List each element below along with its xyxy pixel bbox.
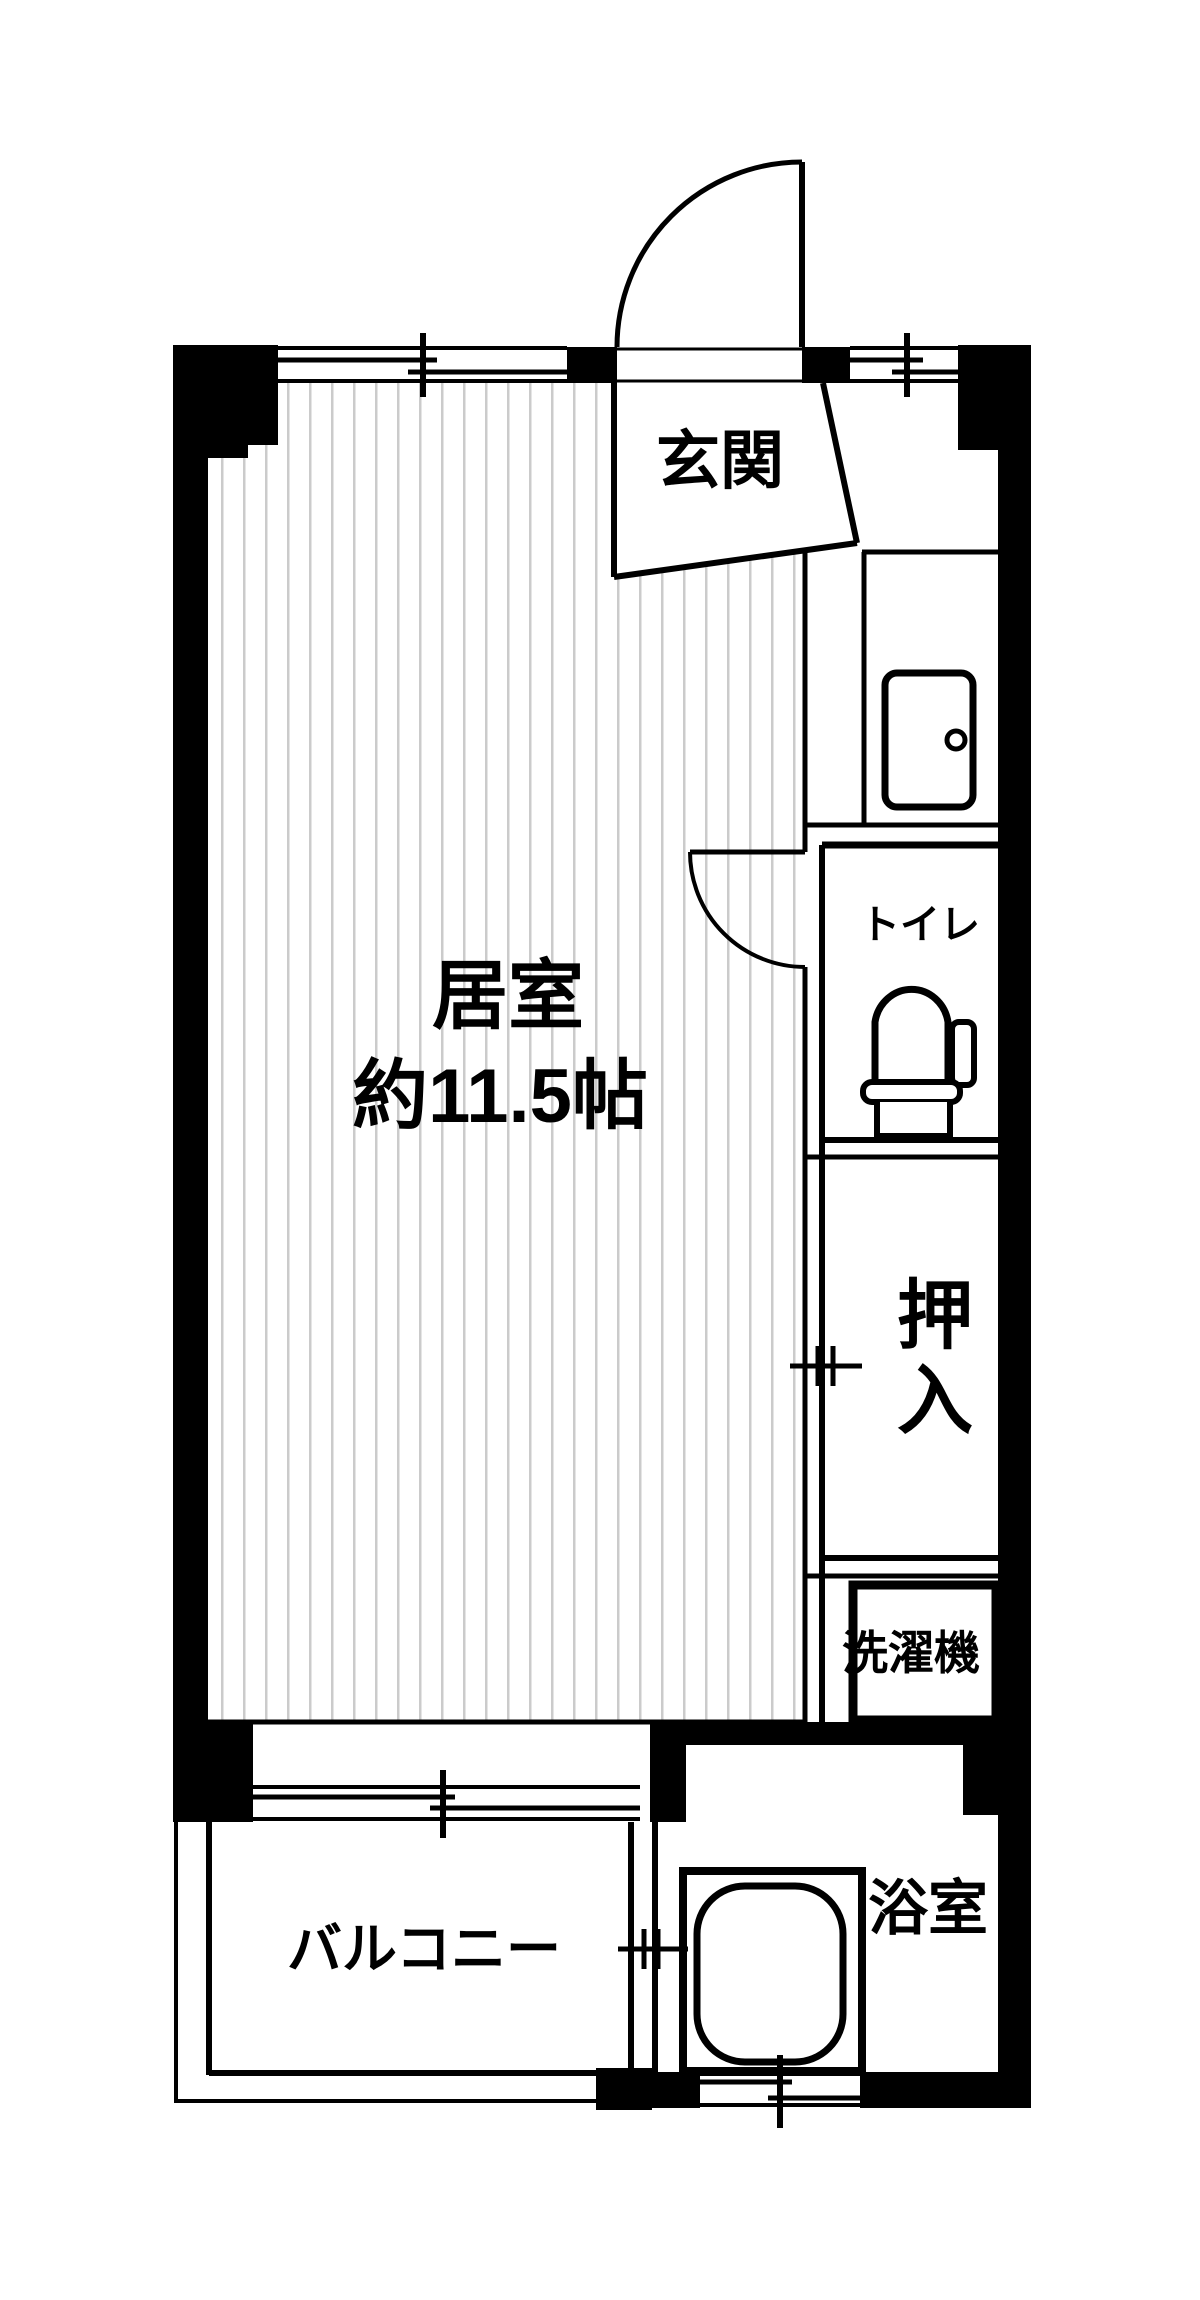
living-room-size-label: 約11.5帖 (352, 1054, 648, 1139)
living-room-floor (208, 383, 803, 1722)
bathtub-icon (683, 1871, 862, 2071)
laundry-label: 洗濯機 (842, 1627, 980, 1679)
closet-label-char-2: 入 (897, 1359, 973, 1444)
entrance-label: 玄関 (656, 425, 784, 497)
window-icon (700, 2055, 860, 2128)
floor-plan: 居室 約11.5帖 玄関 トイレ 押 入 洗濯機 バルコニー 浴室 (0, 0, 1200, 2300)
shoe-cabinet-icon (885, 673, 973, 807)
living-room-label: 居室 (432, 954, 584, 1039)
window-icon (850, 333, 958, 397)
toilet-icon (863, 989, 974, 1136)
balcony-label: バルコニー (287, 1918, 561, 1980)
closet-label-char-1: 押 (897, 1274, 973, 1359)
window-icon (253, 1770, 640, 1838)
bathroom-label: 浴室 (868, 1875, 988, 1942)
entrance-door-swing-icon (617, 162, 802, 347)
floor-plan-svg: 居室 約11.5帖 玄関 トイレ 押 入 洗濯機 バルコニー 浴室 (0, 0, 1200, 2295)
toilet-label: トイレ (860, 903, 980, 947)
